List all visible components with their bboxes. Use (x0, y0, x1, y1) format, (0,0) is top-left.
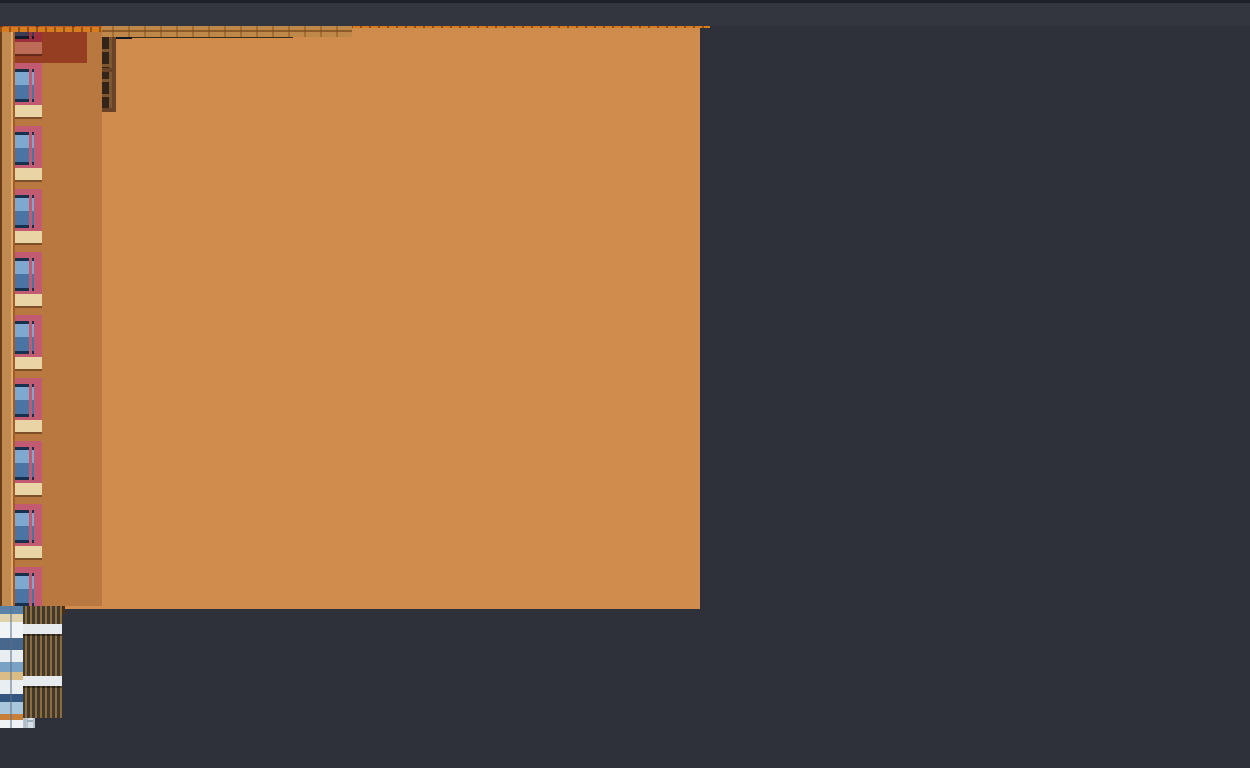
right-center-column (0, 0, 13, 606)
city-scene (0, 0, 1250, 768)
right-brick-building (0, 0, 102, 724)
street (0, 0, 1250, 26)
